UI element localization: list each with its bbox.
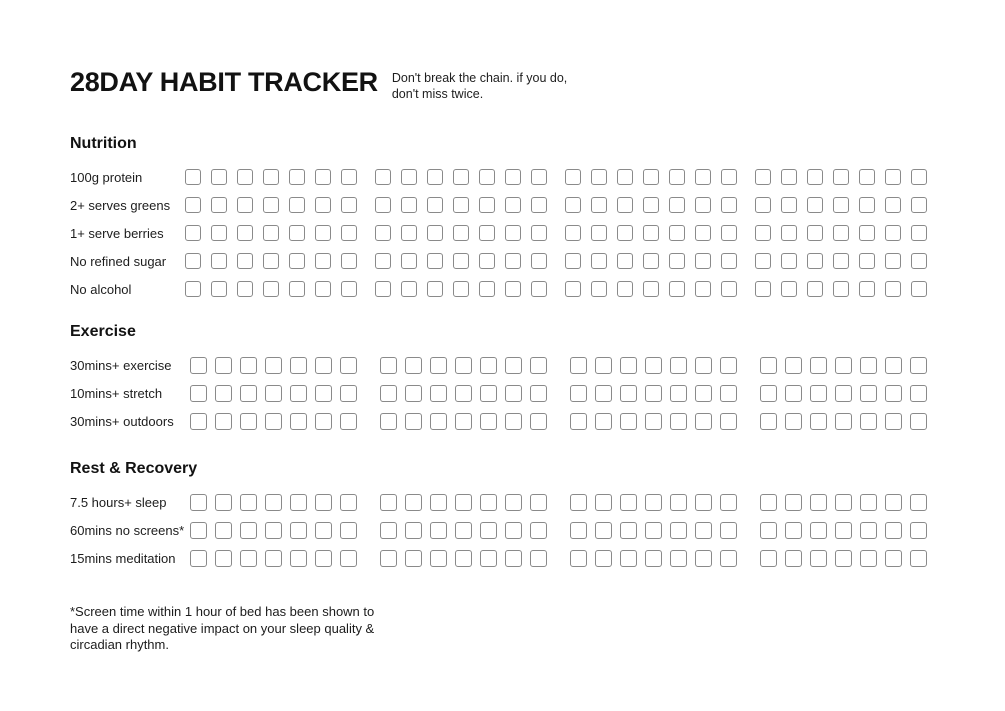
day-checkbox[interactable] bbox=[211, 225, 227, 241]
day-checkbox[interactable] bbox=[810, 413, 827, 430]
day-checkbox[interactable] bbox=[835, 494, 852, 511]
day-checkbox[interactable] bbox=[430, 357, 447, 374]
day-checkbox[interactable] bbox=[565, 281, 581, 297]
day-checkbox[interactable] bbox=[785, 550, 802, 567]
day-checkbox[interactable] bbox=[265, 357, 282, 374]
day-checkbox[interactable] bbox=[427, 225, 443, 241]
day-checkbox[interactable] bbox=[190, 494, 207, 511]
day-checkbox[interactable] bbox=[505, 197, 521, 213]
day-checkbox[interactable] bbox=[911, 281, 927, 297]
day-checkbox[interactable] bbox=[453, 169, 469, 185]
day-checkbox[interactable] bbox=[669, 281, 685, 297]
day-checkbox[interactable] bbox=[911, 253, 927, 269]
day-checkbox[interactable] bbox=[833, 281, 849, 297]
day-checkbox[interactable] bbox=[341, 225, 357, 241]
day-checkbox[interactable] bbox=[720, 357, 737, 374]
day-checkbox[interactable] bbox=[401, 169, 417, 185]
day-checkbox[interactable] bbox=[505, 522, 522, 539]
day-checkbox[interactable] bbox=[695, 413, 712, 430]
day-checkbox[interactable] bbox=[315, 197, 331, 213]
day-checkbox[interactable] bbox=[835, 357, 852, 374]
day-checkbox[interactable] bbox=[480, 357, 497, 374]
day-checkbox[interactable] bbox=[885, 357, 902, 374]
day-checkbox[interactable] bbox=[315, 550, 332, 567]
day-checkbox[interactable] bbox=[405, 494, 422, 511]
day-checkbox[interactable] bbox=[289, 169, 305, 185]
day-checkbox[interactable] bbox=[860, 357, 877, 374]
day-checkbox[interactable] bbox=[720, 494, 737, 511]
day-checkbox[interactable] bbox=[911, 169, 927, 185]
day-checkbox[interactable] bbox=[721, 197, 737, 213]
day-checkbox[interactable] bbox=[211, 197, 227, 213]
day-checkbox[interactable] bbox=[669, 169, 685, 185]
day-checkbox[interactable] bbox=[595, 357, 612, 374]
day-checkbox[interactable] bbox=[595, 385, 612, 402]
day-checkbox[interactable] bbox=[721, 169, 737, 185]
day-checkbox[interactable] bbox=[215, 494, 232, 511]
day-checkbox[interactable] bbox=[315, 253, 331, 269]
day-checkbox[interactable] bbox=[455, 357, 472, 374]
day-checkbox[interactable] bbox=[430, 413, 447, 430]
day-checkbox[interactable] bbox=[211, 169, 227, 185]
day-checkbox[interactable] bbox=[531, 169, 547, 185]
day-checkbox[interactable] bbox=[885, 413, 902, 430]
day-checkbox[interactable] bbox=[315, 357, 332, 374]
day-checkbox[interactable] bbox=[859, 225, 875, 241]
day-checkbox[interactable] bbox=[427, 197, 443, 213]
day-checkbox[interactable] bbox=[289, 281, 305, 297]
day-checkbox[interactable] bbox=[215, 522, 232, 539]
day-checkbox[interactable] bbox=[591, 225, 607, 241]
day-checkbox[interactable] bbox=[570, 357, 587, 374]
day-checkbox[interactable] bbox=[835, 413, 852, 430]
day-checkbox[interactable] bbox=[215, 413, 232, 430]
day-checkbox[interactable] bbox=[290, 413, 307, 430]
day-checkbox[interactable] bbox=[340, 357, 357, 374]
day-checkbox[interactable] bbox=[479, 253, 495, 269]
day-checkbox[interactable] bbox=[860, 413, 877, 430]
day-checkbox[interactable] bbox=[721, 225, 737, 241]
day-checkbox[interactable] bbox=[695, 522, 712, 539]
day-checkbox[interactable] bbox=[190, 522, 207, 539]
day-checkbox[interactable] bbox=[807, 281, 823, 297]
day-checkbox[interactable] bbox=[315, 522, 332, 539]
day-checkbox[interactable] bbox=[505, 281, 521, 297]
day-checkbox[interactable] bbox=[480, 522, 497, 539]
day-checkbox[interactable] bbox=[669, 225, 685, 241]
day-checkbox[interactable] bbox=[455, 385, 472, 402]
day-checkbox[interactable] bbox=[720, 385, 737, 402]
day-checkbox[interactable] bbox=[760, 357, 777, 374]
day-checkbox[interactable] bbox=[380, 522, 397, 539]
day-checkbox[interactable] bbox=[455, 413, 472, 430]
day-checkbox[interactable] bbox=[265, 494, 282, 511]
day-checkbox[interactable] bbox=[570, 385, 587, 402]
day-checkbox[interactable] bbox=[453, 281, 469, 297]
day-checkbox[interactable] bbox=[755, 197, 771, 213]
day-checkbox[interactable] bbox=[340, 494, 357, 511]
day-checkbox[interactable] bbox=[290, 522, 307, 539]
day-checkbox[interactable] bbox=[810, 357, 827, 374]
day-checkbox[interactable] bbox=[669, 197, 685, 213]
day-checkbox[interactable] bbox=[211, 253, 227, 269]
day-checkbox[interactable] bbox=[237, 281, 253, 297]
day-checkbox[interactable] bbox=[427, 281, 443, 297]
day-checkbox[interactable] bbox=[859, 169, 875, 185]
day-checkbox[interactable] bbox=[760, 494, 777, 511]
day-checkbox[interactable] bbox=[215, 357, 232, 374]
day-checkbox[interactable] bbox=[721, 281, 737, 297]
day-checkbox[interactable] bbox=[835, 385, 852, 402]
day-checkbox[interactable] bbox=[480, 494, 497, 511]
day-checkbox[interactable] bbox=[810, 550, 827, 567]
day-checkbox[interactable] bbox=[570, 494, 587, 511]
day-checkbox[interactable] bbox=[591, 169, 607, 185]
day-checkbox[interactable] bbox=[505, 413, 522, 430]
day-checkbox[interactable] bbox=[380, 357, 397, 374]
day-checkbox[interactable] bbox=[760, 550, 777, 567]
day-checkbox[interactable] bbox=[401, 197, 417, 213]
day-checkbox[interactable] bbox=[807, 197, 823, 213]
day-checkbox[interactable] bbox=[860, 522, 877, 539]
day-checkbox[interactable] bbox=[531, 253, 547, 269]
day-checkbox[interactable] bbox=[290, 494, 307, 511]
day-checkbox[interactable] bbox=[670, 413, 687, 430]
day-checkbox[interactable] bbox=[833, 253, 849, 269]
day-checkbox[interactable] bbox=[479, 169, 495, 185]
day-checkbox[interactable] bbox=[505, 253, 521, 269]
day-checkbox[interactable] bbox=[643, 225, 659, 241]
day-checkbox[interactable] bbox=[405, 550, 422, 567]
day-checkbox[interactable] bbox=[340, 550, 357, 567]
day-checkbox[interactable] bbox=[405, 385, 422, 402]
day-checkbox[interactable] bbox=[755, 253, 771, 269]
day-checkbox[interactable] bbox=[380, 413, 397, 430]
day-checkbox[interactable] bbox=[695, 197, 711, 213]
day-checkbox[interactable] bbox=[185, 197, 201, 213]
day-checkbox[interactable] bbox=[591, 281, 607, 297]
day-checkbox[interactable] bbox=[760, 385, 777, 402]
day-checkbox[interactable] bbox=[670, 550, 687, 567]
day-checkbox[interactable] bbox=[240, 550, 257, 567]
day-checkbox[interactable] bbox=[781, 281, 797, 297]
day-checkbox[interactable] bbox=[833, 225, 849, 241]
day-checkbox[interactable] bbox=[885, 197, 901, 213]
day-checkbox[interactable] bbox=[720, 522, 737, 539]
day-checkbox[interactable] bbox=[290, 357, 307, 374]
day-checkbox[interactable] bbox=[455, 522, 472, 539]
day-checkbox[interactable] bbox=[807, 225, 823, 241]
day-checkbox[interactable] bbox=[885, 253, 901, 269]
day-checkbox[interactable] bbox=[617, 225, 633, 241]
day-checkbox[interactable] bbox=[341, 197, 357, 213]
day-checkbox[interactable] bbox=[565, 225, 581, 241]
day-checkbox[interactable] bbox=[595, 550, 612, 567]
day-checkbox[interactable] bbox=[263, 253, 279, 269]
day-checkbox[interactable] bbox=[480, 385, 497, 402]
day-checkbox[interactable] bbox=[620, 550, 637, 567]
day-checkbox[interactable] bbox=[190, 385, 207, 402]
day-checkbox[interactable] bbox=[670, 357, 687, 374]
day-checkbox[interactable] bbox=[565, 197, 581, 213]
day-checkbox[interactable] bbox=[565, 253, 581, 269]
day-checkbox[interactable] bbox=[910, 357, 927, 374]
day-checkbox[interactable] bbox=[340, 413, 357, 430]
day-checkbox[interactable] bbox=[785, 385, 802, 402]
day-checkbox[interactable] bbox=[885, 494, 902, 511]
day-checkbox[interactable] bbox=[620, 494, 637, 511]
day-checkbox[interactable] bbox=[190, 413, 207, 430]
day-checkbox[interactable] bbox=[315, 385, 332, 402]
day-checkbox[interactable] bbox=[430, 385, 447, 402]
day-checkbox[interactable] bbox=[835, 522, 852, 539]
day-checkbox[interactable] bbox=[530, 357, 547, 374]
day-checkbox[interactable] bbox=[375, 253, 391, 269]
day-checkbox[interactable] bbox=[645, 385, 662, 402]
day-checkbox[interactable] bbox=[265, 522, 282, 539]
day-checkbox[interactable] bbox=[595, 522, 612, 539]
day-checkbox[interactable] bbox=[833, 197, 849, 213]
day-checkbox[interactable] bbox=[427, 253, 443, 269]
day-checkbox[interactable] bbox=[695, 253, 711, 269]
day-checkbox[interactable] bbox=[315, 413, 332, 430]
day-checkbox[interactable] bbox=[695, 357, 712, 374]
day-checkbox[interactable] bbox=[620, 357, 637, 374]
day-checkbox[interactable] bbox=[341, 253, 357, 269]
day-checkbox[interactable] bbox=[405, 522, 422, 539]
day-checkbox[interactable] bbox=[781, 197, 797, 213]
day-checkbox[interactable] bbox=[290, 385, 307, 402]
day-checkbox[interactable] bbox=[289, 225, 305, 241]
day-checkbox[interactable] bbox=[885, 225, 901, 241]
day-checkbox[interactable] bbox=[695, 169, 711, 185]
day-checkbox[interactable] bbox=[315, 494, 332, 511]
day-checkbox[interactable] bbox=[215, 385, 232, 402]
day-checkbox[interactable] bbox=[760, 522, 777, 539]
day-checkbox[interactable] bbox=[531, 197, 547, 213]
day-checkbox[interactable] bbox=[721, 253, 737, 269]
day-checkbox[interactable] bbox=[380, 494, 397, 511]
day-checkbox[interactable] bbox=[620, 522, 637, 539]
day-checkbox[interactable] bbox=[885, 281, 901, 297]
day-checkbox[interactable] bbox=[570, 413, 587, 430]
day-checkbox[interactable] bbox=[240, 385, 257, 402]
day-checkbox[interactable] bbox=[405, 413, 422, 430]
day-checkbox[interactable] bbox=[617, 253, 633, 269]
day-checkbox[interactable] bbox=[670, 385, 687, 402]
day-checkbox[interactable] bbox=[807, 253, 823, 269]
day-checkbox[interactable] bbox=[375, 169, 391, 185]
day-checkbox[interactable] bbox=[720, 550, 737, 567]
day-checkbox[interactable] bbox=[591, 197, 607, 213]
day-checkbox[interactable] bbox=[833, 169, 849, 185]
day-checkbox[interactable] bbox=[401, 281, 417, 297]
day-checkbox[interactable] bbox=[215, 550, 232, 567]
day-checkbox[interactable] bbox=[315, 281, 331, 297]
day-checkbox[interactable] bbox=[617, 197, 633, 213]
day-checkbox[interactable] bbox=[910, 522, 927, 539]
day-checkbox[interactable] bbox=[695, 550, 712, 567]
day-checkbox[interactable] bbox=[755, 169, 771, 185]
day-checkbox[interactable] bbox=[505, 494, 522, 511]
day-checkbox[interactable] bbox=[785, 494, 802, 511]
day-checkbox[interactable] bbox=[785, 413, 802, 430]
day-checkbox[interactable] bbox=[810, 385, 827, 402]
day-checkbox[interactable] bbox=[211, 281, 227, 297]
day-checkbox[interactable] bbox=[380, 385, 397, 402]
day-checkbox[interactable] bbox=[695, 494, 712, 511]
day-checkbox[interactable] bbox=[265, 385, 282, 402]
day-checkbox[interactable] bbox=[910, 550, 927, 567]
day-checkbox[interactable] bbox=[670, 494, 687, 511]
day-checkbox[interactable] bbox=[479, 225, 495, 241]
day-checkbox[interactable] bbox=[781, 225, 797, 241]
day-checkbox[interactable] bbox=[595, 494, 612, 511]
day-checkbox[interactable] bbox=[240, 357, 257, 374]
day-checkbox[interactable] bbox=[375, 225, 391, 241]
day-checkbox[interactable] bbox=[807, 169, 823, 185]
day-checkbox[interactable] bbox=[455, 494, 472, 511]
day-checkbox[interactable] bbox=[617, 281, 633, 297]
day-checkbox[interactable] bbox=[885, 385, 902, 402]
day-checkbox[interactable] bbox=[340, 385, 357, 402]
day-checkbox[interactable] bbox=[785, 357, 802, 374]
day-checkbox[interactable] bbox=[240, 494, 257, 511]
day-checkbox[interactable] bbox=[289, 253, 305, 269]
day-checkbox[interactable] bbox=[263, 281, 279, 297]
day-checkbox[interactable] bbox=[185, 169, 201, 185]
day-checkbox[interactable] bbox=[617, 169, 633, 185]
day-checkbox[interactable] bbox=[781, 169, 797, 185]
day-checkbox[interactable] bbox=[505, 550, 522, 567]
day-checkbox[interactable] bbox=[430, 522, 447, 539]
day-checkbox[interactable] bbox=[405, 357, 422, 374]
day-checkbox[interactable] bbox=[375, 197, 391, 213]
day-checkbox[interactable] bbox=[430, 550, 447, 567]
day-checkbox[interactable] bbox=[340, 522, 357, 539]
day-checkbox[interactable] bbox=[240, 522, 257, 539]
day-checkbox[interactable] bbox=[263, 225, 279, 241]
day-checkbox[interactable] bbox=[453, 253, 469, 269]
day-checkbox[interactable] bbox=[190, 550, 207, 567]
day-checkbox[interactable] bbox=[315, 169, 331, 185]
day-checkbox[interactable] bbox=[240, 413, 257, 430]
day-checkbox[interactable] bbox=[835, 550, 852, 567]
day-checkbox[interactable] bbox=[645, 357, 662, 374]
day-checkbox[interactable] bbox=[427, 169, 443, 185]
day-checkbox[interactable] bbox=[480, 550, 497, 567]
day-checkbox[interactable] bbox=[760, 413, 777, 430]
day-checkbox[interactable] bbox=[341, 281, 357, 297]
day-checkbox[interactable] bbox=[620, 385, 637, 402]
day-checkbox[interactable] bbox=[570, 522, 587, 539]
day-checkbox[interactable] bbox=[479, 197, 495, 213]
day-checkbox[interactable] bbox=[695, 281, 711, 297]
day-checkbox[interactable] bbox=[263, 169, 279, 185]
day-checkbox[interactable] bbox=[430, 494, 447, 511]
day-checkbox[interactable] bbox=[531, 225, 547, 241]
day-checkbox[interactable] bbox=[755, 225, 771, 241]
day-checkbox[interactable] bbox=[785, 522, 802, 539]
day-checkbox[interactable] bbox=[263, 197, 279, 213]
day-checkbox[interactable] bbox=[237, 197, 253, 213]
day-checkbox[interactable] bbox=[911, 225, 927, 241]
day-checkbox[interactable] bbox=[595, 413, 612, 430]
day-checkbox[interactable] bbox=[859, 253, 875, 269]
day-checkbox[interactable] bbox=[190, 357, 207, 374]
day-checkbox[interactable] bbox=[265, 550, 282, 567]
day-checkbox[interactable] bbox=[530, 494, 547, 511]
day-checkbox[interactable] bbox=[565, 169, 581, 185]
day-checkbox[interactable] bbox=[530, 413, 547, 430]
day-checkbox[interactable] bbox=[910, 413, 927, 430]
day-checkbox[interactable] bbox=[237, 253, 253, 269]
day-checkbox[interactable] bbox=[781, 253, 797, 269]
day-checkbox[interactable] bbox=[620, 413, 637, 430]
day-checkbox[interactable] bbox=[910, 494, 927, 511]
day-checkbox[interactable] bbox=[237, 169, 253, 185]
day-checkbox[interactable] bbox=[669, 253, 685, 269]
day-checkbox[interactable] bbox=[720, 413, 737, 430]
day-checkbox[interactable] bbox=[185, 281, 201, 297]
day-checkbox[interactable] bbox=[453, 197, 469, 213]
day-checkbox[interactable] bbox=[265, 413, 282, 430]
day-checkbox[interactable] bbox=[860, 550, 877, 567]
day-checkbox[interactable] bbox=[505, 225, 521, 241]
day-checkbox[interactable] bbox=[859, 281, 875, 297]
day-checkbox[interactable] bbox=[505, 169, 521, 185]
day-checkbox[interactable] bbox=[185, 253, 201, 269]
day-checkbox[interactable] bbox=[695, 225, 711, 241]
day-checkbox[interactable] bbox=[670, 522, 687, 539]
day-checkbox[interactable] bbox=[290, 550, 307, 567]
day-checkbox[interactable] bbox=[643, 281, 659, 297]
day-checkbox[interactable] bbox=[401, 225, 417, 241]
day-checkbox[interactable] bbox=[530, 385, 547, 402]
day-checkbox[interactable] bbox=[755, 281, 771, 297]
day-checkbox[interactable] bbox=[185, 225, 201, 241]
day-checkbox[interactable] bbox=[860, 385, 877, 402]
day-checkbox[interactable] bbox=[645, 413, 662, 430]
day-checkbox[interactable] bbox=[645, 522, 662, 539]
day-checkbox[interactable] bbox=[570, 550, 587, 567]
day-checkbox[interactable] bbox=[911, 197, 927, 213]
day-checkbox[interactable] bbox=[530, 550, 547, 567]
day-checkbox[interactable] bbox=[695, 385, 712, 402]
day-checkbox[interactable] bbox=[643, 197, 659, 213]
day-checkbox[interactable] bbox=[479, 281, 495, 297]
day-checkbox[interactable] bbox=[380, 550, 397, 567]
day-checkbox[interactable] bbox=[645, 494, 662, 511]
day-checkbox[interactable] bbox=[531, 281, 547, 297]
day-checkbox[interactable] bbox=[643, 253, 659, 269]
day-checkbox[interactable] bbox=[591, 253, 607, 269]
day-checkbox[interactable] bbox=[530, 522, 547, 539]
day-checkbox[interactable] bbox=[315, 225, 331, 241]
day-checkbox[interactable] bbox=[505, 357, 522, 374]
day-checkbox[interactable] bbox=[860, 494, 877, 511]
day-checkbox[interactable] bbox=[455, 550, 472, 567]
day-checkbox[interactable] bbox=[237, 225, 253, 241]
day-checkbox[interactable] bbox=[341, 169, 357, 185]
day-checkbox[interactable] bbox=[885, 522, 902, 539]
day-checkbox[interactable] bbox=[401, 253, 417, 269]
day-checkbox[interactable] bbox=[453, 225, 469, 241]
day-checkbox[interactable] bbox=[480, 413, 497, 430]
day-checkbox[interactable] bbox=[643, 169, 659, 185]
day-checkbox[interactable] bbox=[375, 281, 391, 297]
day-checkbox[interactable] bbox=[645, 550, 662, 567]
